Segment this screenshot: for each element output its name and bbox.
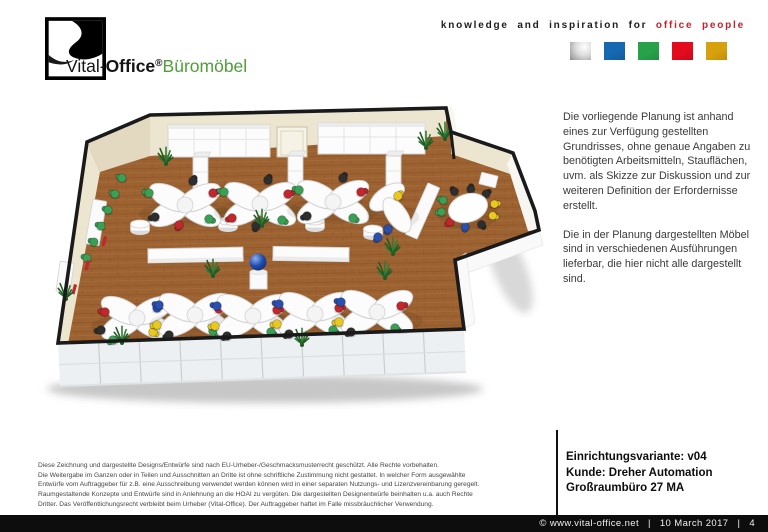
gold-square <box>706 42 727 60</box>
green-square <box>638 42 659 60</box>
description-paragraph-1: Die vorliegende Planung ist anhand eines… <box>563 110 763 214</box>
logo-wordmark: Vital-Office®Büromöbel <box>66 56 247 77</box>
tagline-red: office people <box>656 20 745 31</box>
tagline-black: knowledge and inspiration for <box>441 20 647 31</box>
project-info-block: Einrichtungsvariante: v04 Kunde: Dreher … <box>566 450 713 497</box>
legal-notice: Diese Zeichnung und dargestellte Designs… <box>38 461 546 510</box>
tagline: knowledge and inspiration for office peo… <box>441 20 745 31</box>
brand-color-squares <box>570 42 727 60</box>
description-paragraph-2: Die in der Planung dargestellten Möbel s… <box>563 228 763 287</box>
footer-separator: | <box>737 518 740 529</box>
logo-suffix: Büromöbel <box>163 56 248 76</box>
variant-line: Einrichtungsvariante: v04 <box>566 450 713 466</box>
logo-brand-bold: Office <box>106 56 156 76</box>
footer-date: 10 March 2017 <box>660 518 729 529</box>
footer-separator: | <box>648 518 651 529</box>
footer-bar: © www.vital-office.net | 10 March 2017 |… <box>0 515 768 532</box>
red-square <box>672 42 693 60</box>
logo-brand: Vital- <box>66 56 106 76</box>
customer-line: Kunde: Dreher Automation <box>566 466 713 482</box>
footer-copyright: © www.vital-office.net <box>539 518 639 529</box>
room-line: Großraumbüro 27 MA <box>566 481 713 497</box>
description-text: Die vorliegende Planung ist anhand eines… <box>563 110 763 301</box>
slide-page: Vital-Office®Büromöbel knowledge and ins… <box>0 0 768 532</box>
footer-page-number: 4 <box>749 518 755 529</box>
floorplan-rendering <box>30 98 546 410</box>
vertical-divider <box>556 430 558 516</box>
registered-mark: ® <box>155 58 162 69</box>
silver-square <box>570 42 591 60</box>
blue-square <box>604 42 625 60</box>
